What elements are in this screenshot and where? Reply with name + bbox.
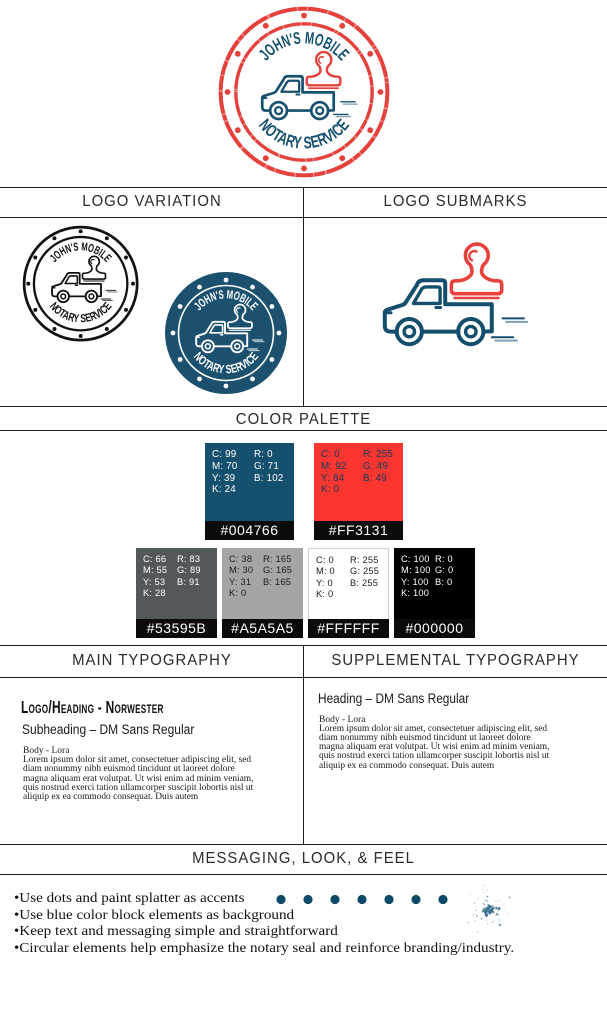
svg-text:NOTARY SERVICE: NOTARY SERVICE [47, 300, 114, 326]
svg-text:NOTARY SERVICE: NOTARY SERVICE [255, 115, 353, 152]
